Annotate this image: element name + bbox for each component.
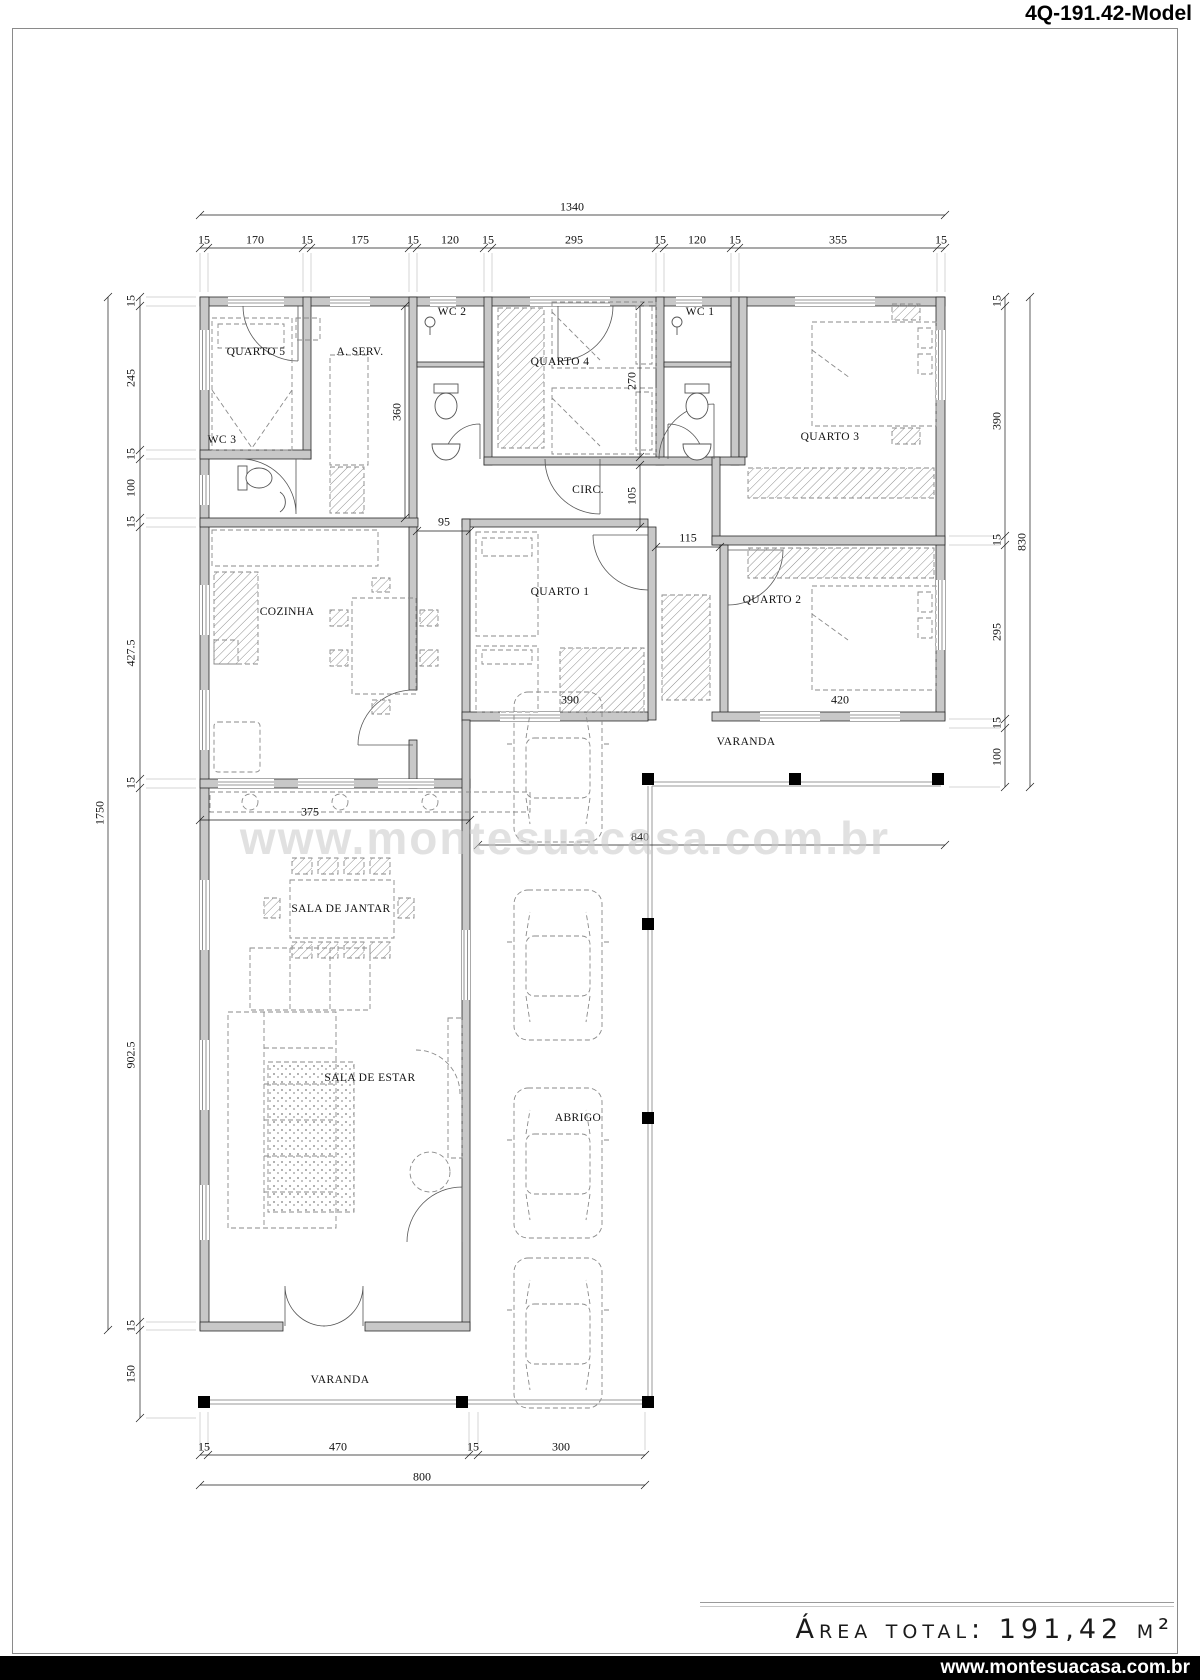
footer-url: www.montesuacasa.com.br — [940, 1657, 1200, 1679]
area-separator-line — [700, 1602, 1174, 1607]
footer-bar: www.montesuacasa.com.br — [0, 1656, 1200, 1680]
watermark: www.montesuacasa.com.br — [240, 811, 890, 865]
drawing-page: 4Q-191.42-Model — [0, 0, 1200, 1680]
total-area-text: Área total: 191,42 m² — [796, 1614, 1174, 1645]
